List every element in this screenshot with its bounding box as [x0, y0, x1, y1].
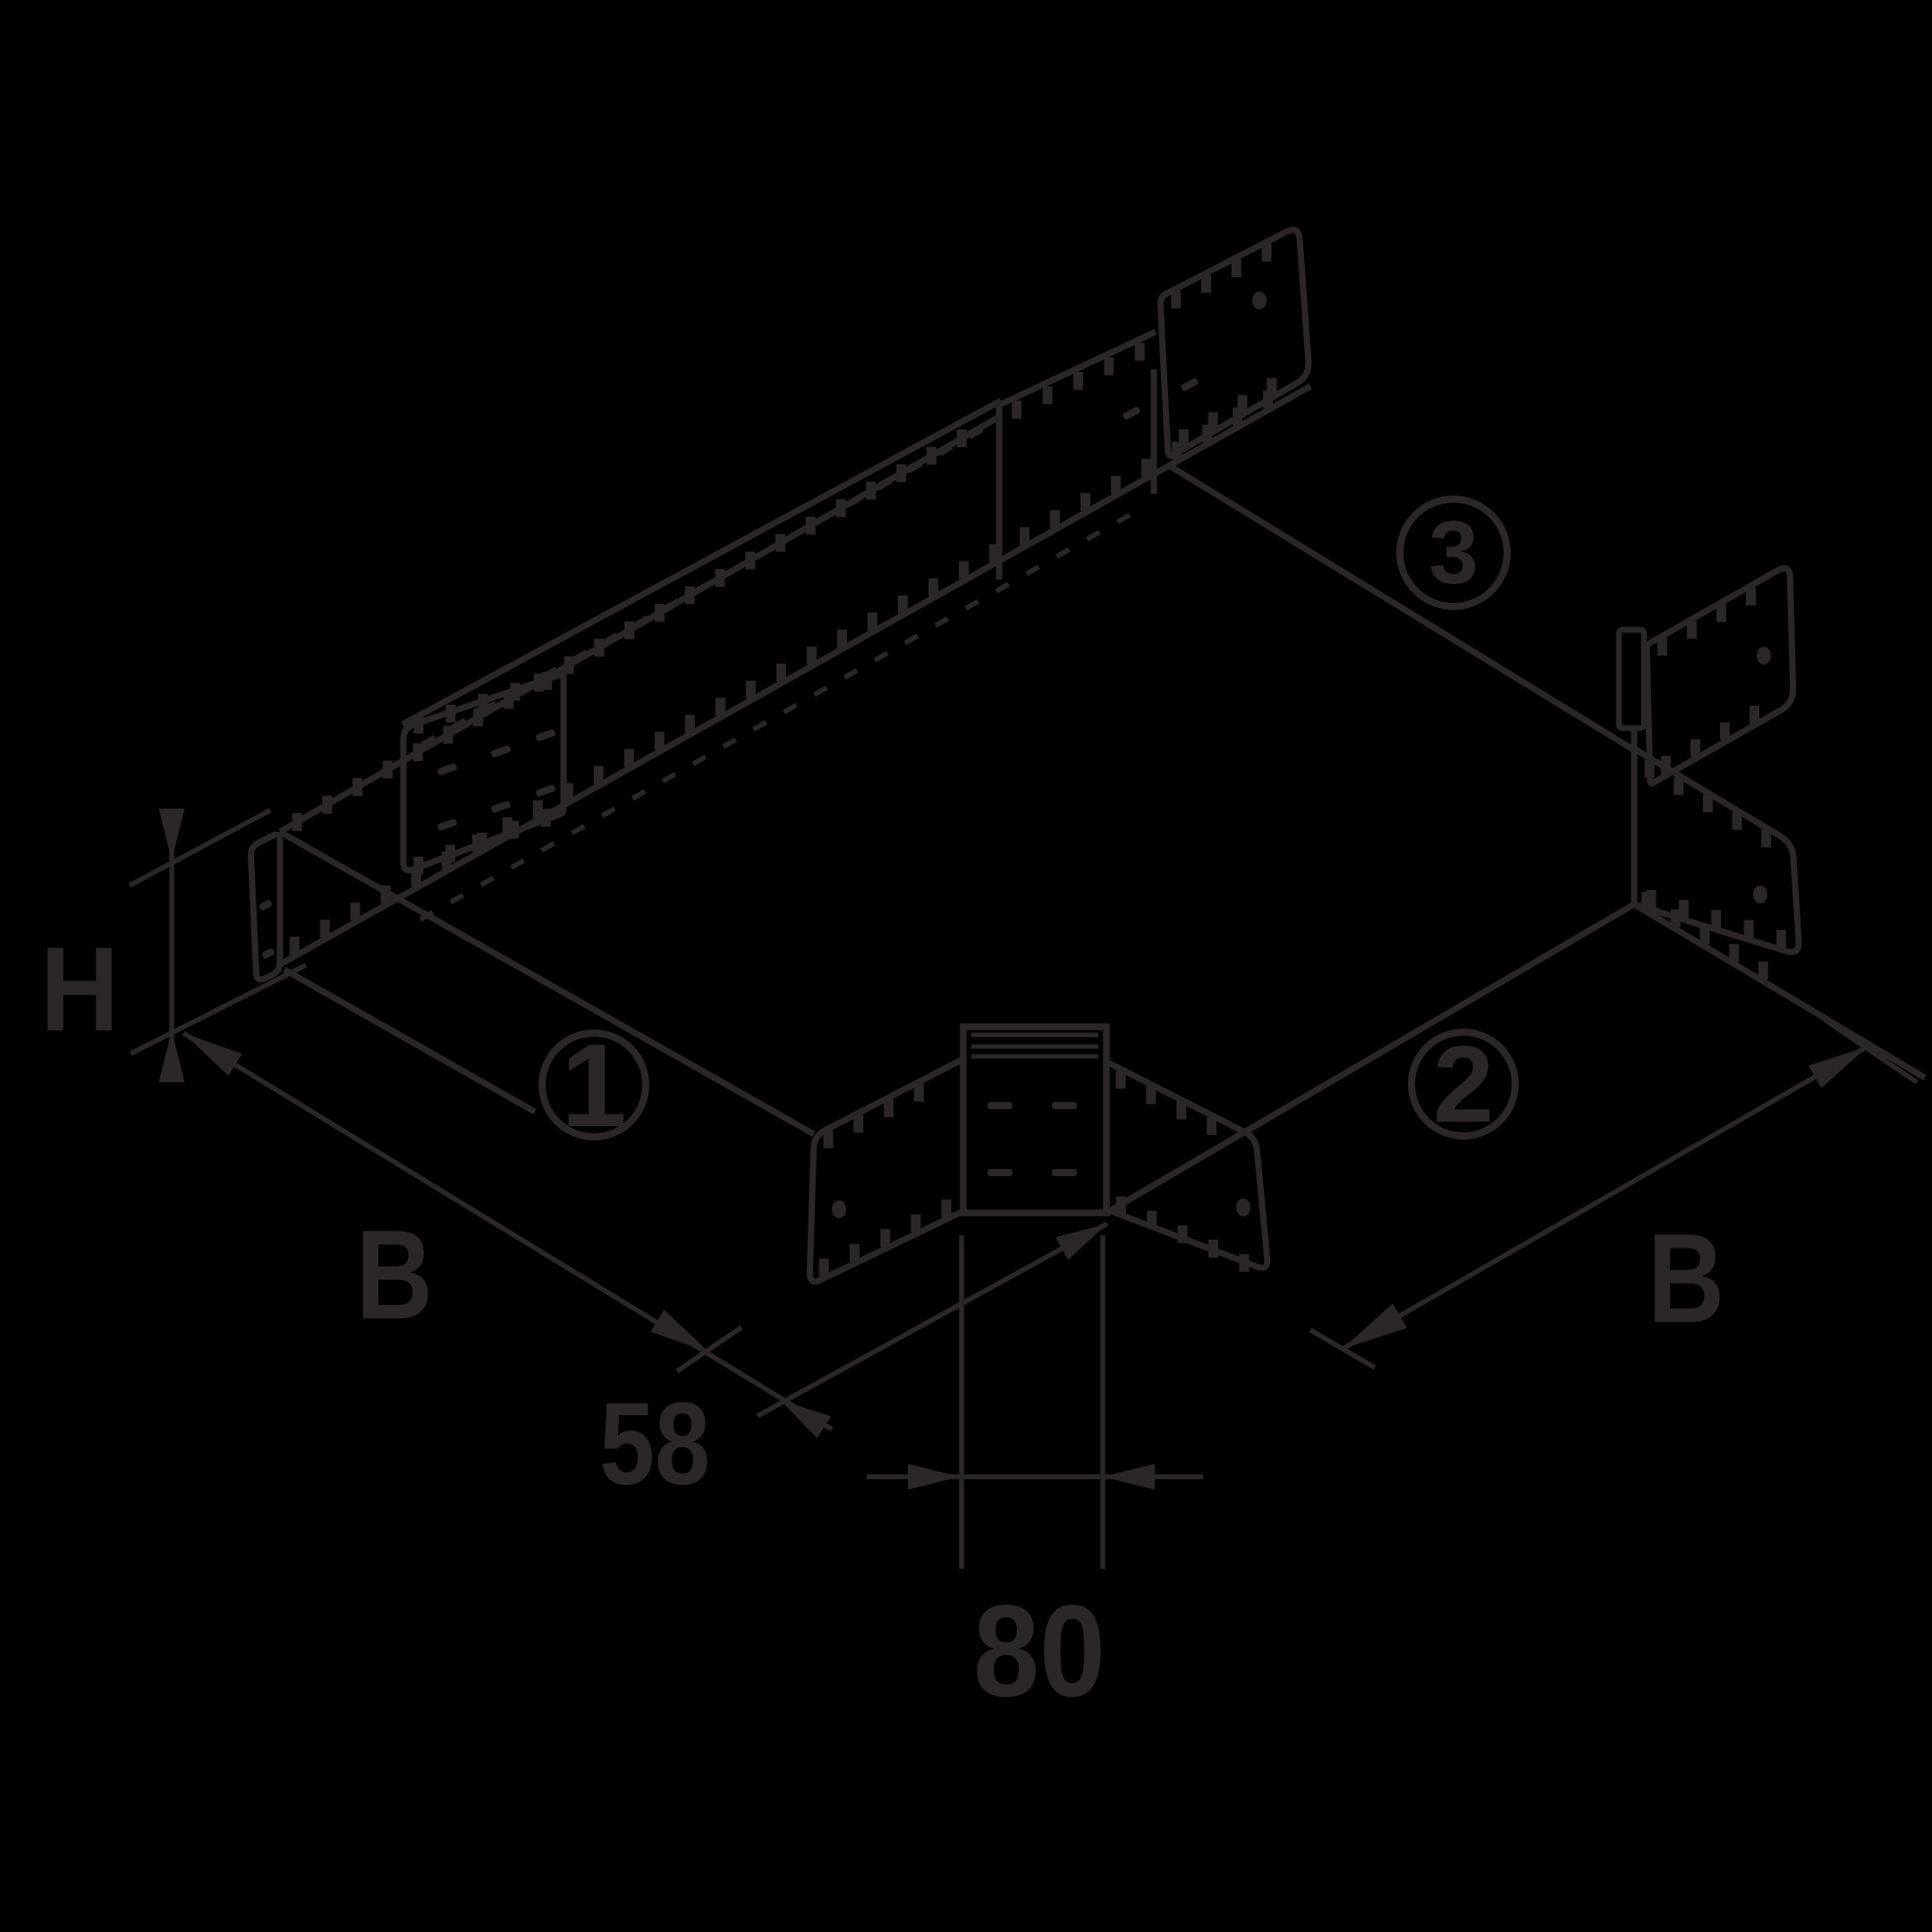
svg-text:80: 80: [973, 1578, 1106, 1724]
svg-text:3: 3: [1428, 503, 1479, 603]
svg-text:B: B: [356, 1204, 433, 1346]
svg-text:B: B: [1648, 1207, 1724, 1350]
svg-text:58: 58: [599, 1377, 710, 1509]
svg-text:1: 1: [561, 1020, 626, 1151]
svg-text:2: 2: [1433, 1023, 1494, 1145]
svg-text:H: H: [40, 923, 119, 1056]
